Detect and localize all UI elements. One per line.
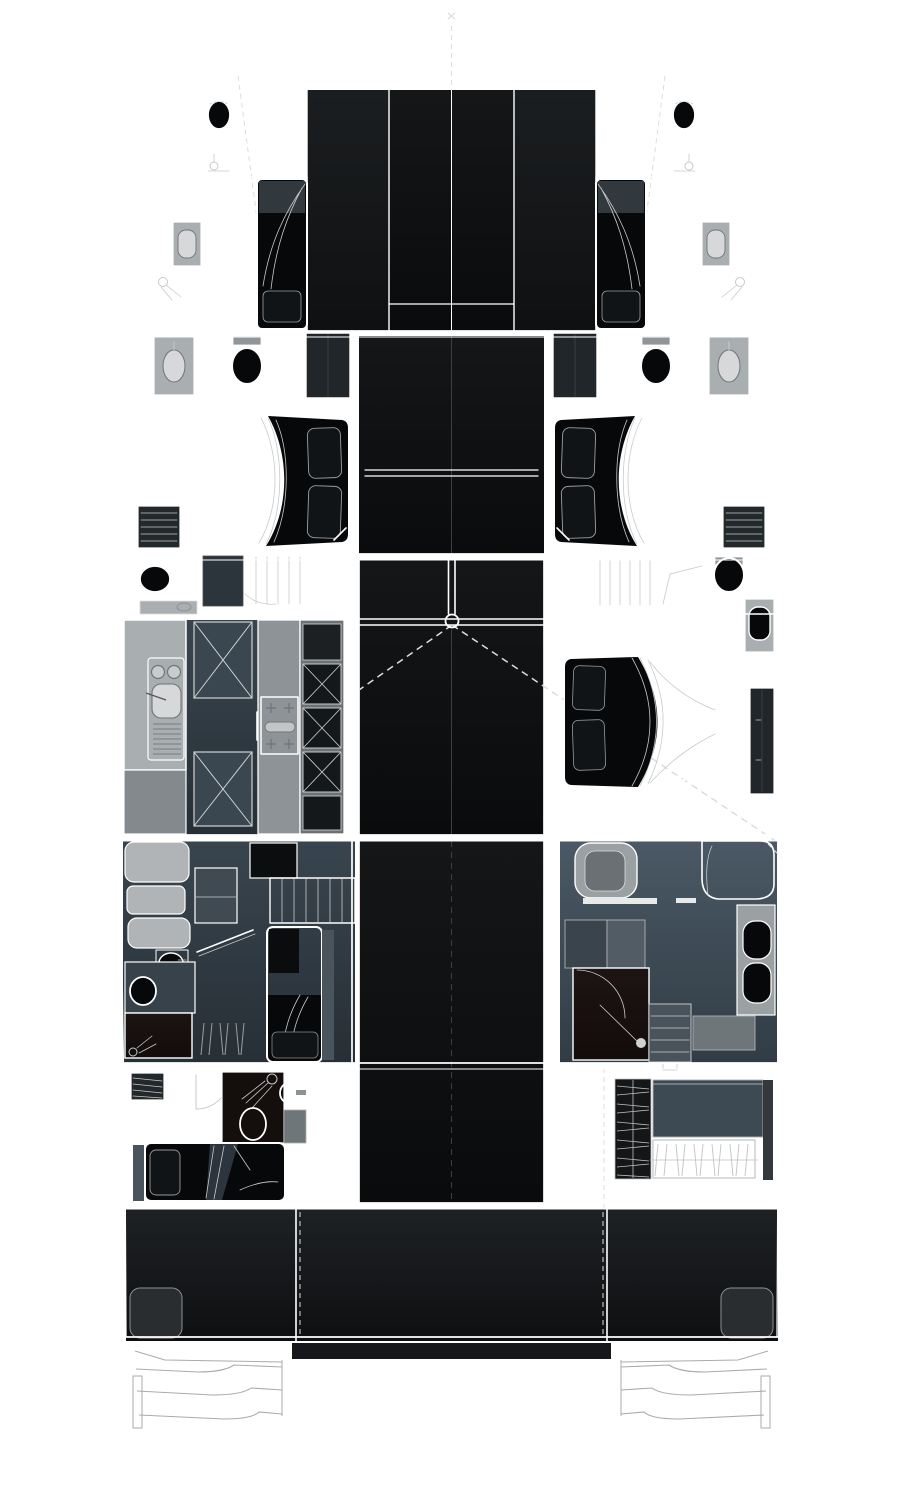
shower-room: [167, 1072, 230, 1143]
locker-door: [133, 1101, 165, 1145]
vanity-strip: [284, 1110, 306, 1143]
port-aft-cabin: [123, 841, 355, 1063]
faucet: [296, 1090, 306, 1095]
double-vanity: [737, 905, 775, 1015]
port-swim-platform: [132, 1347, 292, 1491]
catamaran-deck-plan: [0, 0, 902, 1498]
double-bed: [200, 416, 348, 546]
pillow: [307, 427, 342, 478]
desk: [195, 868, 237, 923]
starboard-aft-bathroom: [560, 841, 782, 1070]
landing-lines: [243, 607, 352, 614]
shower-room: [125, 1013, 192, 1058]
louvre-vent: [138, 506, 180, 548]
cockpit-bench: [130, 1288, 182, 1338]
starboard-vip-suite: [544, 331, 773, 554]
vanity: [140, 601, 197, 614]
aft-center-panels: [352, 835, 551, 1203]
crew-berth: [653, 1080, 763, 1137]
floor-hatch: [194, 752, 252, 826]
washbasin: [749, 607, 770, 640]
floor-plan-canvas: [0, 0, 902, 1498]
port-vip-suite: [130, 331, 359, 554]
outboard-cabinet: [124, 770, 186, 834]
door-arc: [266, 362, 302, 398]
single-berth: [257, 179, 307, 329]
shower-drain: [636, 1038, 646, 1048]
inboard-wall: [352, 331, 359, 554]
floor-hatch: [194, 622, 252, 698]
toilet: [714, 558, 744, 592]
galley-head: [125, 556, 201, 618]
pillow: [263, 291, 301, 322]
port-aft-guest-cabin: [120, 1070, 310, 1203]
shower-door-bar: [676, 898, 696, 903]
pillow: [272, 1032, 318, 1058]
shower-glass: [658, 560, 702, 606]
bedside-board: [322, 930, 334, 1060]
cabinet: [693, 1016, 755, 1050]
aft-head: [125, 962, 195, 1013]
door-arc: [655, 613, 745, 653]
side-strip: [763, 1080, 773, 1180]
cabinet: [250, 843, 297, 878]
bedside-board: [133, 1145, 144, 1201]
washbasin: [140, 566, 170, 592]
desk-edge: [583, 898, 657, 904]
starboard-bow-tip: [674, 15, 692, 64]
corridor-cabinet: [203, 556, 243, 606]
louvre-rack: [615, 1079, 651, 1179]
cold-storage-column: [300, 620, 344, 834]
sofa: [125, 842, 190, 948]
cockpit-bench: [721, 1288, 773, 1338]
starboard-swim-platform: [611, 1347, 771, 1491]
toilet: [130, 977, 156, 1005]
toilet: [232, 348, 262, 384]
pillow: [307, 485, 342, 538]
shower-spray-lines: [161, 285, 181, 300]
owner-bed: [565, 656, 717, 788]
owner-bathroom: [560, 556, 775, 653]
port-bow-tip: [211, 15, 229, 64]
washbasin: [178, 230, 196, 258]
pillow: [572, 665, 606, 710]
washbasin: [163, 350, 185, 382]
shower-glass-inner: [663, 566, 702, 604]
cabinet: [607, 920, 645, 968]
cabinet: [565, 920, 607, 968]
door-arc: [228, 524, 258, 554]
pillow: [572, 719, 606, 770]
foredeck-panels: [307, 90, 596, 331]
drawers: [649, 1004, 691, 1070]
washbasin: [743, 963, 771, 1003]
companionway-stairs: [590, 559, 658, 606]
louvre-vent: [131, 1073, 164, 1100]
aft-platform-strip: [292, 1343, 611, 1360]
seat: [575, 843, 637, 898]
floor-hatch-grate: [650, 1140, 758, 1178]
washbasin: [743, 921, 771, 959]
aft-cockpit: [126, 1209, 778, 1341]
salon: [359, 336, 544, 554]
owner-suite: [551, 556, 777, 835]
wardrobe: [750, 688, 774, 794]
toilet: [208, 101, 230, 129]
shower-room: [573, 968, 649, 1060]
companionway-stairs: [245, 556, 310, 605]
drainer-slats: [153, 724, 181, 754]
galley: [124, 556, 352, 835]
berth: [145, 1143, 285, 1201]
pillow: [150, 1150, 180, 1195]
